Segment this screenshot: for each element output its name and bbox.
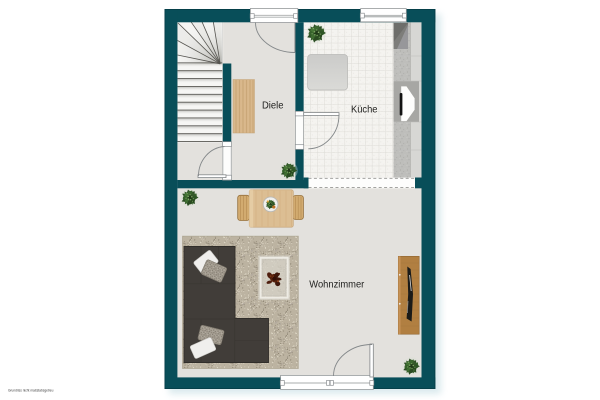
svg-text:Küche: Küche	[351, 104, 378, 115]
svg-text:Wohnzimmer: Wohnzimmer	[309, 279, 365, 290]
svg-text:Diele: Diele	[262, 101, 284, 112]
svg-text:Grundriss nicht maßstabsgetreu: Grundriss nicht maßstabsgetreu	[8, 388, 54, 392]
